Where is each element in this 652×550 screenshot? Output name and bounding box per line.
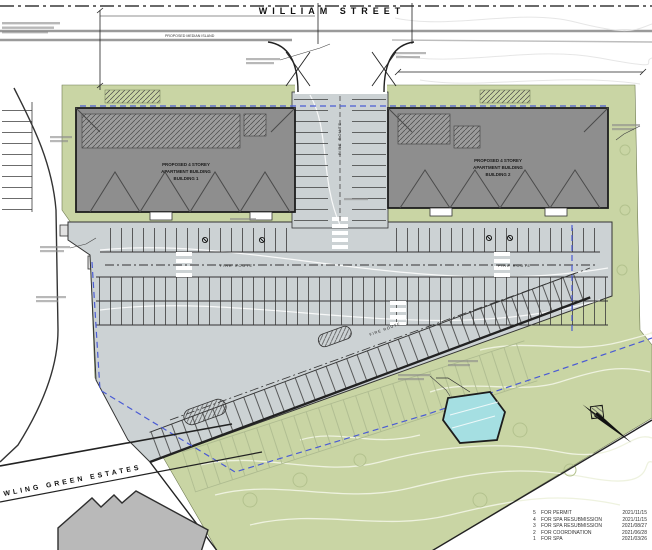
parking-row-a-east bbox=[390, 228, 600, 252]
median-label: PROPOSED MEDIAN ISLAND bbox=[165, 34, 215, 38]
contour-lines-white bbox=[395, 17, 652, 84]
svg-text:BUILDING 1: BUILDING 1 bbox=[174, 176, 199, 181]
svg-text:BUILDING 2: BUILDING 2 bbox=[486, 172, 511, 177]
b1-roof-terrace-hatch bbox=[82, 114, 240, 148]
fire-route-label-2: FIRE ROUTE bbox=[498, 264, 531, 268]
existing-building-footprint bbox=[58, 491, 208, 550]
entrance-curb-return-west bbox=[268, 42, 298, 92]
svg-text:PROPOSED 4 STOREY: PROPOSED 4 STOREY bbox=[474, 158, 522, 163]
fire-route-label-court: FIRE ROUTE bbox=[338, 122, 342, 155]
site-plan-canvas: WILLIAM STREET PROPOSED MEDIAN ISLAND bbox=[0, 0, 652, 550]
b2-roof-terrace-hatch bbox=[398, 114, 450, 144]
revision-description: FOR SPA bbox=[541, 536, 613, 543]
revision-row: 1 FOR SPA 2021/03/26 bbox=[533, 536, 647, 543]
svg-text:PROPOSED 4 STOREY: PROPOSED 4 STOREY bbox=[162, 162, 210, 167]
site-plan-drawing: WILLIAM STREET PROPOSED MEDIAN ISLAND bbox=[0, 0, 652, 550]
south-curb-line-east bbox=[392, 40, 652, 42]
b2-entrance-porch-2 bbox=[545, 208, 567, 216]
revision-number: 1 bbox=[533, 536, 541, 543]
court-stalls-west bbox=[294, 96, 328, 224]
revision-table: 5 FOR PERMIT 2021/11/15 4 FOR SPA RESUBM… bbox=[533, 510, 647, 543]
street-parking-stalls bbox=[2, 102, 32, 212]
building-1: PROPOSED 4 STOREY APARTMENT BUILDING BUI… bbox=[76, 108, 295, 220]
b2-entrance-porch-1 bbox=[430, 208, 452, 216]
court-stalls-east bbox=[352, 96, 386, 224]
william-street: WILLIAM STREET PROPOSED MEDIAN ISLAND bbox=[0, 6, 652, 42]
svg-text:APARTMENT BUILDING: APARTMENT BUILDING bbox=[473, 165, 523, 170]
svg-text:APARTMENT BUILDING: APARTMENT BUILDING bbox=[161, 169, 211, 174]
building-2: PROPOSED 4 STOREY APARTMENT BUILDING BUI… bbox=[388, 108, 608, 216]
bowling-green-label: WLING GREEN ESTATES bbox=[3, 464, 142, 498]
revision-date: 2021/03/26 bbox=[613, 536, 647, 543]
entrance-drive bbox=[295, 38, 387, 94]
fire-route-label-1: FIRE ROUTE bbox=[220, 264, 253, 268]
parking-row-a-west bbox=[100, 228, 295, 252]
william-street-label: WILLIAM STREET bbox=[259, 6, 406, 16]
entrance-curb-return-east bbox=[384, 42, 414, 92]
b1-entrance-porch-1 bbox=[150, 212, 172, 220]
